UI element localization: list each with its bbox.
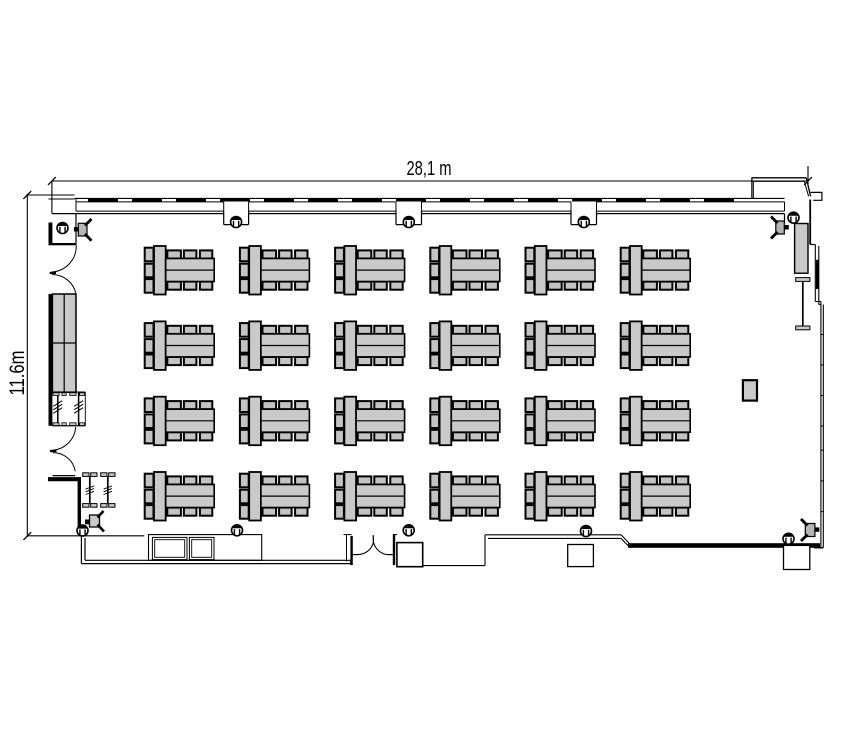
svg-text:28,1 m: 28,1 m <box>407 158 452 180</box>
svg-text:11.6m: 11.6m <box>6 351 29 396</box>
